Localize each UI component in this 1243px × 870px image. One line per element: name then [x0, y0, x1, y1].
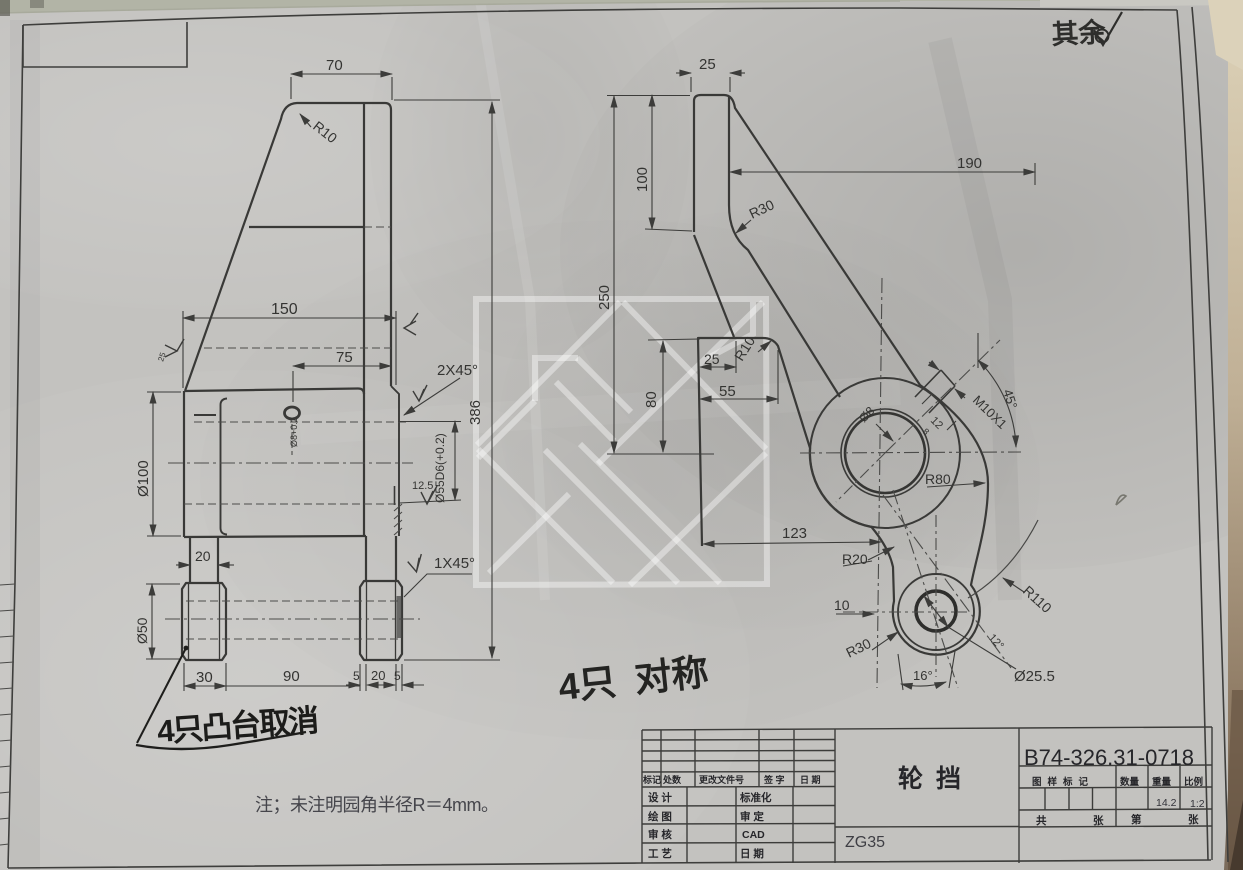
svg-text:比例: 比例: [1184, 776, 1203, 788]
svg-text:对称: 对称: [633, 651, 711, 700]
svg-text:150: 150: [271, 301, 298, 318]
svg-text:5: 5: [394, 669, 401, 683]
svg-text:第: 第: [1131, 813, 1142, 826]
svg-text:Ø100: Ø100: [135, 460, 152, 497]
svg-text:处数: 处数: [662, 774, 682, 785]
svg-text:审 核: 审 核: [648, 828, 672, 841]
svg-text:4只: 4只: [557, 661, 619, 708]
svg-text:80: 80: [643, 391, 660, 408]
svg-text:2X45°: 2X45°: [437, 362, 478, 379]
svg-text:5: 5: [353, 669, 360, 683]
svg-text:70: 70: [326, 57, 343, 74]
svg-text:55: 55: [719, 383, 736, 400]
svg-text:90: 90: [283, 668, 300, 685]
svg-text:100: 100: [634, 167, 651, 192]
svg-text:25: 25: [704, 351, 720, 367]
svg-text:12.5: 12.5: [412, 480, 433, 492]
svg-text:日 期: 日 期: [740, 847, 764, 860]
svg-text:注；未注明园角半径R＝4mm。: 注；未注明园角半径R＝4mm。: [255, 795, 499, 815]
svg-text:设 计: 设 计: [648, 791, 672, 804]
svg-text:共: 共: [1036, 814, 1047, 827]
svg-text:Ø8+0.2: Ø8+0.2: [289, 417, 299, 447]
svg-text:1:2: 1:2: [1190, 798, 1205, 810]
svg-text:123: 123: [782, 525, 807, 542]
svg-text:Ø25.5: Ø25.5: [1014, 668, 1055, 685]
svg-text:标准化: 标准化: [739, 791, 772, 804]
svg-text:20: 20: [195, 548, 211, 564]
svg-text:标记: 标记: [642, 774, 661, 785]
svg-text:20: 20: [371, 668, 385, 683]
svg-text:10: 10: [834, 597, 850, 613]
svg-text:张: 张: [1093, 814, 1104, 827]
svg-text:更改文件号: 更改文件号: [699, 774, 744, 785]
svg-text:其余: 其余: [1051, 16, 1108, 50]
svg-text:25: 25: [699, 56, 716, 73]
svg-text:签 字: 签 字: [763, 774, 785, 785]
svg-text:14.2: 14.2: [1156, 797, 1177, 809]
svg-text:轮 挡: 轮 挡: [898, 765, 964, 793]
svg-text:R80: R80: [925, 471, 951, 487]
svg-text:B74-326.31-0718: B74-326.31-0718: [1024, 745, 1194, 770]
svg-text:386: 386: [467, 400, 484, 425]
svg-text:75: 75: [336, 349, 353, 366]
svg-text:图样标记: 图样标记: [1032, 776, 1094, 788]
svg-text:R20: R20: [842, 551, 868, 567]
svg-text:工 艺: 工 艺: [648, 847, 672, 860]
svg-text:数量: 数量: [1119, 776, 1140, 788]
svg-text:CAD: CAD: [742, 829, 765, 841]
svg-text:Ø55D6(+0.2): Ø55D6(+0.2): [433, 433, 447, 503]
svg-text:绘 图: 绘 图: [648, 810, 672, 823]
svg-text:ZG35: ZG35: [845, 834, 885, 851]
svg-text:日 期: 日 期: [800, 774, 821, 785]
svg-text:张: 张: [1188, 813, 1199, 826]
svg-text:250: 250: [596, 285, 613, 310]
svg-text:16°: 16°: [913, 668, 933, 683]
svg-text:30: 30: [196, 669, 213, 686]
svg-text:重量: 重量: [1152, 776, 1172, 788]
svg-text:审 定: 审 定: [740, 810, 764, 823]
svg-text:Ø50: Ø50: [134, 617, 150, 644]
svg-text:190: 190: [957, 155, 982, 172]
svg-text:1X45°: 1X45°: [434, 555, 475, 572]
